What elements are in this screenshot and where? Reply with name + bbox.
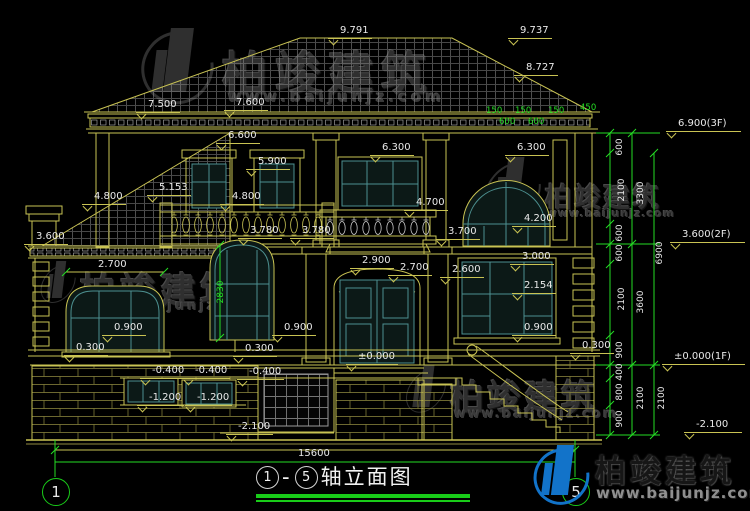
level-annotation: 3.780 (290, 225, 334, 239)
dimension-annotation: 600 (615, 224, 625, 241)
level-annotation: -1.200 (137, 392, 184, 406)
dimension-annotation: 2100 (617, 288, 627, 311)
level-annotation: -0.400 (237, 366, 284, 380)
dimension-annotation: 800 (615, 383, 625, 400)
level-annotation: 9.737 (508, 25, 552, 39)
dimension-annotation: 150 (548, 107, 564, 117)
dimension-annotation: 6900 (655, 242, 665, 265)
cad-canvas: 柏竣建筑 www.baijunjz.com 柏竣建筑 www.baijunjz.… (0, 0, 750, 511)
brand-logo-icon (533, 444, 591, 506)
level-annotation: 8.727 (514, 62, 558, 76)
level-annotation: 6.300 (370, 142, 414, 156)
level-annotation: 4.700 (404, 197, 448, 211)
level-annotation: 6.900(3F) (666, 118, 741, 132)
level-annotation: -2.100 (226, 421, 273, 435)
level-annotation: 6.300 (505, 142, 549, 156)
dimension-annotation: 150 (486, 107, 502, 117)
level-annotation: -1.200 (185, 392, 232, 406)
title-axis-end: 5 (295, 466, 318, 489)
title-underline-thin (256, 500, 470, 502)
level-annotation: 2.700 (388, 262, 432, 276)
level-annotation: 3.780 (238, 225, 282, 239)
level-annotation: ±0.000(1F) (662, 351, 745, 365)
dimension-annotation: 900 (615, 341, 625, 358)
dimension-annotation: 3600 (636, 291, 646, 314)
level-annotation: 4.200 (512, 213, 556, 227)
dimension-annotation: 600 (615, 138, 625, 155)
dimension-annotation: 2830 (216, 281, 226, 304)
title-axis-start: 1 (256, 466, 279, 489)
level-annotation: -2.100 (684, 419, 742, 433)
dimension-annotation: 150 (515, 107, 531, 117)
dimension-annotation: 15600 (298, 448, 330, 460)
dimension-annotation: 400 (615, 363, 625, 380)
dimension-annotation: 2100 (636, 387, 646, 410)
level-annotation: 2.154 (512, 280, 556, 294)
level-annotation: 3.700 (436, 226, 480, 240)
dimension-annotation: 900 (615, 410, 625, 427)
level-annotation: 6.600 (216, 130, 260, 144)
level-annotation: 7.600 (224, 97, 268, 111)
level-annotation: 5.153 (147, 182, 191, 196)
level-annotation: 7.500 (136, 99, 180, 113)
dimension-annotation: 600 (499, 118, 515, 128)
level-annotation: 0.900 (512, 322, 556, 336)
level-annotation: 0.900 (272, 322, 316, 336)
level-annotation: 9.791 (328, 25, 372, 39)
level-annotation: 5.900 (246, 156, 290, 170)
title-underline (256, 494, 470, 498)
dimension-annotation: 2100 (657, 387, 667, 410)
level-annotation: -0.400 (140, 365, 187, 379)
dimension-annotation: 2100 (617, 179, 627, 202)
dimension-annotation: 3300 (636, 182, 646, 205)
dimension-annotation: 450 (580, 104, 596, 114)
level-annotation: 0.300 (233, 343, 277, 357)
dimension-annotation: 600 (615, 244, 625, 261)
level-annotation: 4.800 (220, 191, 264, 205)
level-annotation: 4.800 (82, 191, 126, 205)
level-annotation: 3.600(2F) (670, 229, 745, 243)
brand-logo-url: www.baijunjz.com (596, 484, 750, 502)
title-text: 轴立面图 (321, 464, 413, 490)
annotation-layer: 9.7919.7378.7277.5007.6006.6006.3006.300… (0, 0, 750, 511)
level-annotation: 0.900 (102, 322, 146, 336)
drawing-title: 1 - 5 轴立面图 (256, 464, 413, 490)
level-annotation: 0.300 (64, 342, 108, 356)
title-dash: - (282, 464, 292, 490)
level-annotation: 0.300 (570, 340, 614, 354)
level-annotation: 2.600 (440, 264, 484, 278)
level-annotation: 3.600 (24, 231, 68, 245)
dimension-annotation: 2.700 (98, 259, 127, 271)
level-annotation: -0.400 (183, 365, 230, 379)
level-annotation: ±0.000 (346, 351, 398, 365)
level-annotation: 3.000 (510, 251, 554, 265)
dimension-annotation: 600 (528, 118, 544, 128)
